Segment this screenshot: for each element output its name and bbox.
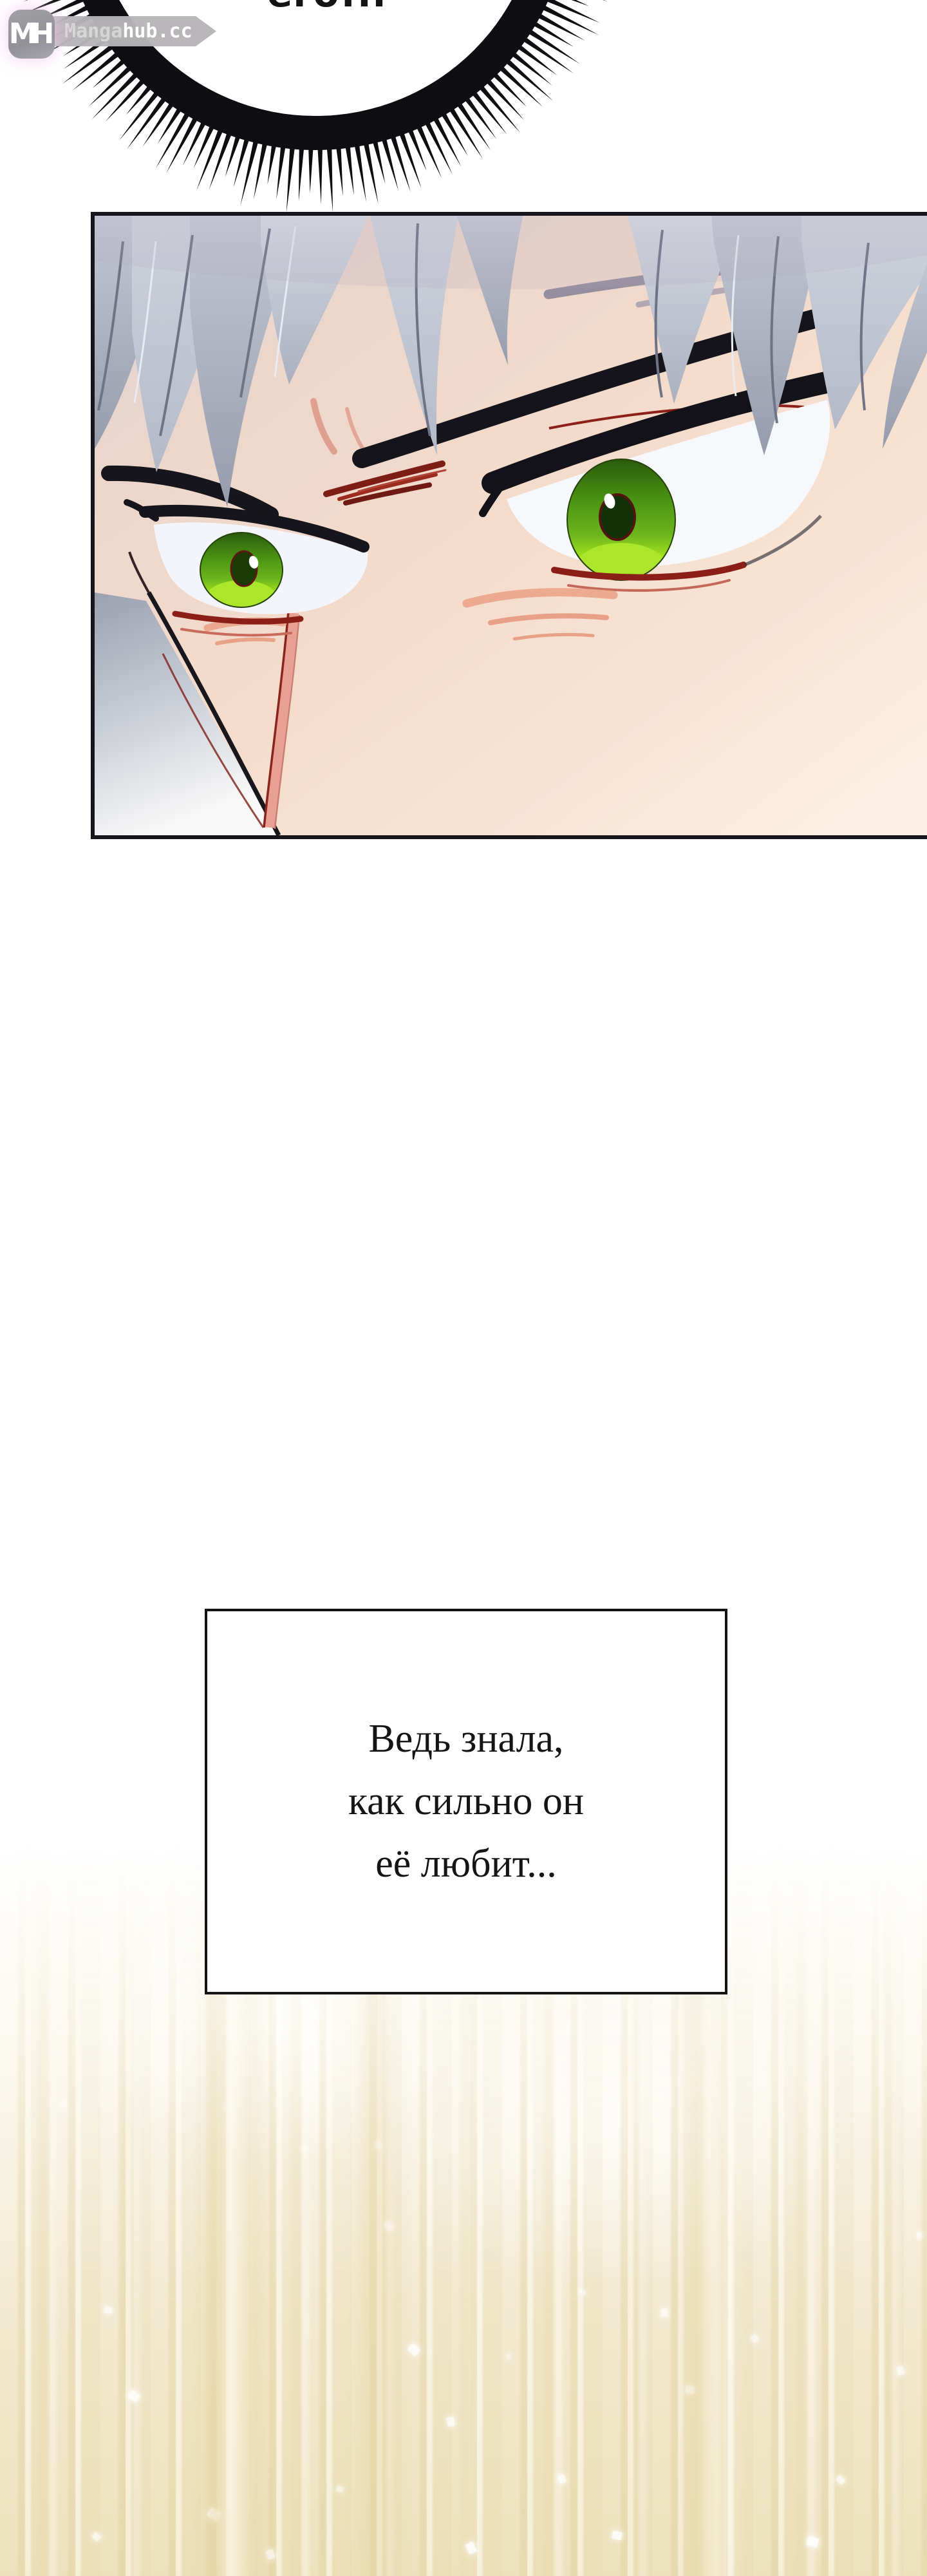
sparkle [836,2475,845,2485]
sparkle [446,2417,454,2427]
sparkle [300,2145,307,2151]
watermark-site-suffix: hub.cc [122,20,192,43]
watermark-logo: M H [8,10,55,59]
sparkle [59,2100,68,2108]
sparkle [685,2385,695,2394]
sparkle [375,2141,382,2149]
sparkle [407,2343,420,2356]
sparkle [506,2353,512,2360]
sparkle [611,2530,622,2540]
sparkle [465,2541,478,2554]
sparkle [557,2474,566,2484]
sparkle [265,2549,276,2560]
sparkle [223,2103,230,2110]
narration-box: Ведь знала, как сильно он её любит... [205,1609,727,1994]
manhwa-page: его!.. Mangahub.cc M H [0,0,927,2576]
sparkle [384,2221,395,2232]
shout-bubble-text: его!.. [263,0,391,15]
sparkle [661,2309,668,2316]
sparkle [806,2536,819,2547]
sparkle [336,2486,344,2493]
watermark-monogram-h: H [30,20,54,48]
sparkle [895,2365,904,2375]
sparkle [916,2231,922,2239]
sparkle [104,2306,113,2314]
panel-artwork [95,216,927,835]
sparkle [750,2334,758,2343]
sparkle [579,2289,586,2295]
watermark-banner: Mangahub.cc [50,16,216,46]
sparkle [127,2390,140,2403]
narration-line: её любит... [375,1833,556,1895]
sparkle [207,2507,221,2521]
narration-line: Ведь знала, [368,1708,563,1770]
narration-line: как сильно он [348,1770,584,1833]
art-panel [91,212,927,839]
sparkle [91,2532,101,2541]
watermark-site-prefix: Manga [64,20,122,43]
